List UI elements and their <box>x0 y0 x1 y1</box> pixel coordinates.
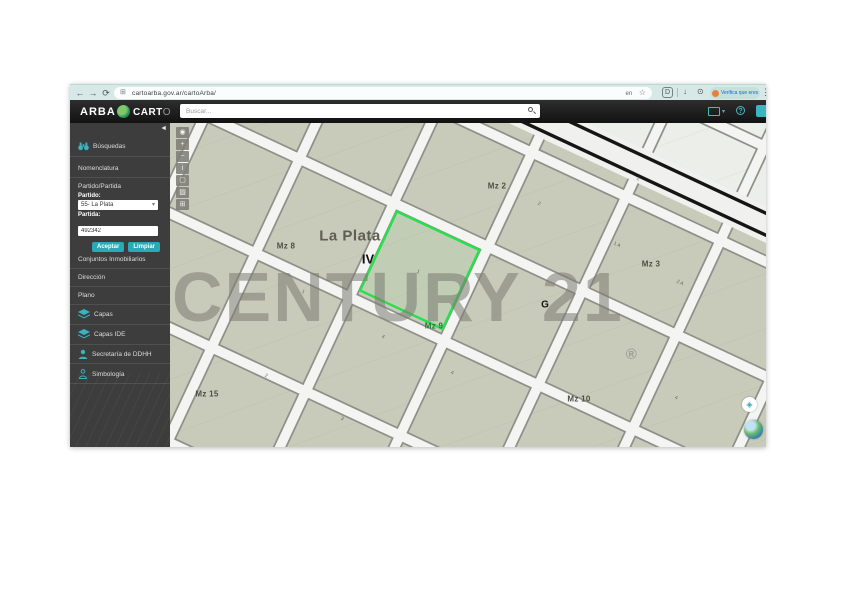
sidebar-label: Conjuntos Inmobiliarios <box>78 256 146 263</box>
partido-selected-value: 55- La Plata <box>81 202 113 208</box>
sidebar-label: Nomenclatura <box>78 165 118 172</box>
print-button[interactable]: ⊞ <box>176 199 189 210</box>
sidebar-label: Secretaría de DDHH <box>92 351 152 358</box>
map-label: 2 <box>536 201 541 208</box>
sidebar-item-conjuntos[interactable]: Conjuntos Inmobiliarios <box>70 251 170 269</box>
bookmark-star-icon[interactable]: ☆ <box>639 88 646 97</box>
forward-icon[interactable]: → <box>87 86 99 100</box>
map-label: 4 <box>673 395 678 402</box>
partido-label: Partido: <box>78 193 170 199</box>
app-header: ARBA CARTO ? <box>70 100 766 123</box>
messages-icon[interactable] <box>708 107 720 116</box>
map-label: 4 <box>449 370 454 377</box>
map-label: 1 <box>415 269 420 276</box>
map-label: La Plata <box>319 228 381 245</box>
extent-button[interactable]: ▢ <box>176 175 189 186</box>
partido-partida-form: Partido: 55- La Plata ▾ Partida: Aceptar… <box>70 191 170 252</box>
profile-pill[interactable]: Verifica que eres tú <box>710 87 760 99</box>
help-icon[interactable]: ? <box>736 106 745 115</box>
layers-icon <box>78 309 90 320</box>
map-canvas[interactable]: CENTURY 21® La PlataIVMz 2Mz 8Mz 3Mz 9Mz… <box>170 123 766 447</box>
arba-logo[interactable]: ARBA <box>80 106 116 118</box>
sidebar-label: Capas <box>94 311 113 318</box>
map-labels: La PlataIVMz 2Mz 8Mz 3Mz 9Mz 10Mz 15G114… <box>170 123 766 447</box>
map-label: Mz 9 <box>425 322 444 331</box>
map-label: Mz 2 <box>488 182 507 191</box>
map-label: Mz 10 <box>567 395 590 404</box>
partida-label: Partida: <box>78 212 170 218</box>
sidebar-item-simbologia[interactable]: Simbología <box>70 365 170 384</box>
map-widget-button[interactable]: ◈ <box>742 397 757 412</box>
chrome-menu-icon[interactable]: ⋮ <box>761 87 770 98</box>
info-button[interactable]: i <box>176 163 189 174</box>
sidebar-label: Búsquedas <box>93 143 126 150</box>
sidebar-item-plano[interactable]: Plano <box>70 287 170 305</box>
map-label: 2 <box>635 176 640 183</box>
globe-logo-button[interactable] <box>744 420 763 439</box>
map-toolbar: ◉+−i▢▨⊞ <box>176 127 189 210</box>
locate-button[interactable]: ◉ <box>176 127 189 138</box>
binoculars-icon <box>78 142 89 151</box>
sidebar: ◄ Búsquedas Nomenclatura Partido/Partida… <box>70 123 170 447</box>
sidebar-label: Plano <box>78 292 95 299</box>
browser-window: ← → ⟳ ⊞ cartoarba.gov.ar/cartoArba/ en ☆… <box>70 84 766 447</box>
carto-logo-icon <box>117 105 130 118</box>
chevron-down-icon: ▾ <box>152 200 155 210</box>
page: ← → ⟳ ⊞ cartoarba.gov.ar/cartoArba/ en ☆… <box>0 0 842 595</box>
symbology-icon <box>78 369 88 379</box>
chrome-divider <box>677 88 678 97</box>
download-icon[interactable]: ↓ <box>683 87 687 96</box>
map-label: G <box>541 300 549 311</box>
sidebar-label: Partido/Partida <box>78 183 121 190</box>
site-info-icon[interactable]: ⊞ <box>120 89 126 97</box>
sidebar-label: Simbología <box>92 371 125 378</box>
map-label: 2 A <box>675 279 684 287</box>
zoom-out-button[interactable]: − <box>176 151 189 162</box>
translate-icon[interactable]: en <box>625 91 632 97</box>
map-label: Mz 15 <box>195 390 218 399</box>
profile-pill-label: Verifica que eres tú <box>721 90 760 96</box>
partida-input[interactable] <box>78 226 158 236</box>
sidebar-item-busquedas[interactable]: Búsquedas <box>70 137 170 157</box>
carto-wordmark[interactable]: CARTO <box>133 107 171 118</box>
sidebar-item-capas-ide[interactable]: Capas IDE <box>70 325 170 345</box>
url-text: cartoarba.gov.ar/cartoArba/ <box>132 90 216 97</box>
map-label: Mz 3 <box>642 260 661 269</box>
measure-button[interactable]: ▨ <box>176 187 189 198</box>
sidebar-label: Capas IDE <box>94 331 125 338</box>
partido-select[interactable]: 55- La Plata ▾ <box>78 200 158 210</box>
sidebar-item-direccion[interactable]: Dirección <box>70 269 170 287</box>
apps-icon[interactable] <box>756 105 766 117</box>
map-label: 4 <box>380 334 385 341</box>
extensions-icon[interactable]: ⊙ <box>697 87 704 96</box>
search-input[interactable] <box>180 104 540 118</box>
layers-icon <box>78 329 90 340</box>
map-label: 3 <box>339 416 344 423</box>
carto-wordmark-suffix: O <box>163 107 171 118</box>
map-label: 2 <box>263 373 268 380</box>
sidebar-collapse-icon[interactable]: ◄ <box>160 125 167 132</box>
sidebar-item-capas[interactable]: Capas <box>70 305 170 325</box>
sidebar-label: Dirección <box>78 274 105 281</box>
app-body: ◄ Búsquedas Nomenclatura Partido/Partida… <box>70 123 766 447</box>
zoom-in-button[interactable]: + <box>176 139 189 150</box>
browser-chrome-bar: ← → ⟳ ⊞ cartoarba.gov.ar/cartoArba/ en ☆… <box>70 84 766 100</box>
reload-icon[interactable]: ⟳ <box>100 86 112 100</box>
person-icon <box>78 349 88 359</box>
avatar <box>712 90 719 97</box>
address-bar[interactable]: ⊞ cartoarba.gov.ar/cartoArba/ en ☆ <box>114 87 652 99</box>
map-label: Mz 8 <box>277 242 296 251</box>
sidebar-item-ddhh[interactable]: Secretaría de DDHH <box>70 345 170 364</box>
sidebar-item-nomenclatura[interactable]: Nomenclatura <box>70 160 170 178</box>
search-icon[interactable] <box>528 107 533 112</box>
map-label: IV <box>362 252 374 267</box>
extension-d-icon[interactable]: D <box>662 87 673 98</box>
back-icon[interactable]: ← <box>74 86 86 100</box>
map-label: 1 <box>300 289 305 296</box>
omnibox-right-icons: en ☆ <box>625 88 646 97</box>
map-label: 1 A <box>612 241 621 249</box>
